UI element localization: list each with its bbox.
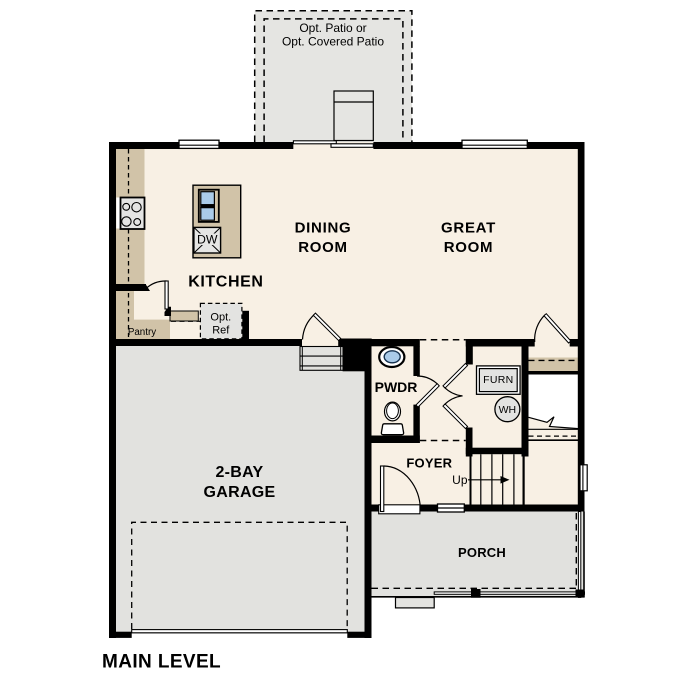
svg-text:Up: Up [452,473,468,487]
svg-text:KITCHEN: KITCHEN [188,273,263,290]
svg-text:Opt. Patio or: Opt. Patio or [299,21,366,35]
svg-text:ROOM: ROOM [298,239,347,256]
svg-text:GREAT: GREAT [441,219,496,236]
svg-text:Ref: Ref [212,325,230,337]
svg-text:PWDR: PWDR [375,379,418,395]
svg-text:2-BAY: 2-BAY [215,464,263,481]
svg-text:WH: WH [499,404,517,416]
svg-text:ROOM: ROOM [444,239,493,256]
svg-text:DINING: DINING [295,219,352,236]
svg-text:MAIN LEVEL: MAIN LEVEL [102,651,221,672]
svg-text:Opt. Covered Patio: Opt. Covered Patio [282,34,384,48]
svg-text:Pantry: Pantry [128,327,156,338]
svg-text:GARAGE: GARAGE [203,484,275,501]
svg-text:FOYER: FOYER [406,456,452,471]
svg-text:FURN: FURN [483,374,513,386]
svg-text:PORCH: PORCH [458,545,506,560]
svg-text:DW: DW [197,233,218,247]
svg-text:Opt.: Opt. [210,312,231,324]
